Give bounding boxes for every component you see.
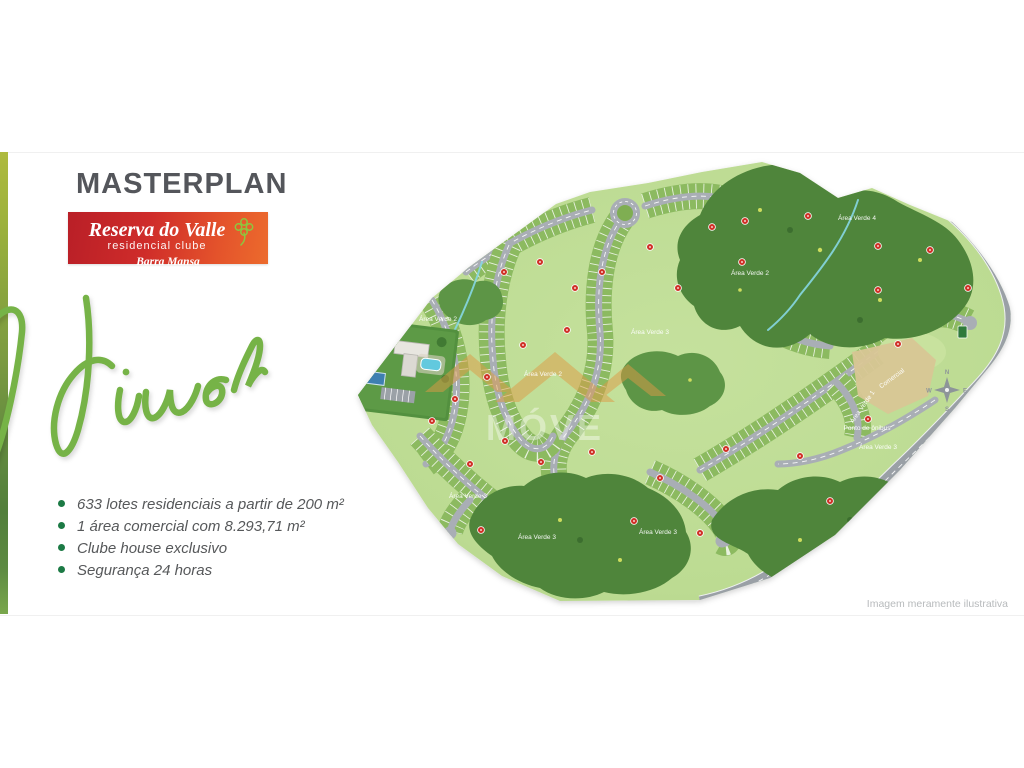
- compass-letter: E: [963, 389, 967, 395]
- map-label: Área Verde 2: [524, 369, 562, 378]
- map-label: Área Verde 3: [449, 491, 487, 500]
- pool: [420, 358, 441, 371]
- features-list: 633 lotes residenciais a partir de 200 m…: [58, 496, 344, 584]
- map-label: Área Verde 3: [518, 532, 556, 541]
- page-title: MASTERPLAN: [76, 168, 287, 201]
- script-viver: Viver: [0, 292, 265, 487]
- feature-text: Segurança 24 horas: [77, 562, 212, 579]
- masterplan-map: MÓVE Área Verde 2Área Verde 2Área Verde …: [350, 150, 1024, 614]
- cul-de-sac: [444, 527, 457, 540]
- feature-item: Segurança 24 horas: [58, 562, 344, 579]
- feature-item: 633 lotes residenciais a partir de 200 m…: [58, 496, 344, 513]
- map-disclaimer: Imagem meramente ilustrativa: [867, 598, 1008, 610]
- feature-text: 1 área comercial com 8.293,71 m²: [77, 518, 305, 535]
- logo-banner: Reserva do Valle residencial clube Barra…: [68, 212, 268, 264]
- compass-letter: N: [945, 370, 949, 376]
- water-tank-sign: [958, 326, 967, 338]
- club-area: [353, 318, 459, 421]
- page: MASTERPLAN Reserva do Valle residencial …: [0, 0, 1024, 768]
- bullet-dot: [58, 500, 65, 507]
- compass-letter: W: [926, 389, 932, 395]
- feature-text: Clube house exclusivo: [77, 540, 227, 557]
- map-label: Área Verde 3: [859, 442, 897, 451]
- compass-letter: S: [945, 407, 949, 413]
- map-label: Área Verde 2: [419, 314, 457, 323]
- roundabout: [614, 202, 637, 225]
- bullet-dot: [58, 522, 65, 529]
- logo-city: Barra Mansa: [68, 256, 268, 268]
- map-label: Área Verde 4: [838, 213, 876, 222]
- script-viver-strokes: [0, 298, 265, 464]
- map-label: Área Verde 3: [639, 527, 677, 536]
- viver-i-dot: [123, 369, 130, 376]
- map-label: Área Verde 3: [631, 327, 669, 336]
- clover-icon: [233, 216, 257, 251]
- sports-court: [364, 371, 385, 385]
- bullet-dot: [58, 544, 65, 551]
- feature-text: 633 lotes residenciais a partir de 200 m…: [77, 496, 344, 513]
- map-label: Ponto de ônibus: [844, 425, 892, 432]
- map-label: Área Verde 2: [731, 268, 769, 277]
- feature-item: 1 área comercial com 8.293,71 m²: [58, 518, 344, 535]
- feature-item: Clube house exclusivo: [58, 540, 344, 557]
- bullet-dot: [58, 566, 65, 573]
